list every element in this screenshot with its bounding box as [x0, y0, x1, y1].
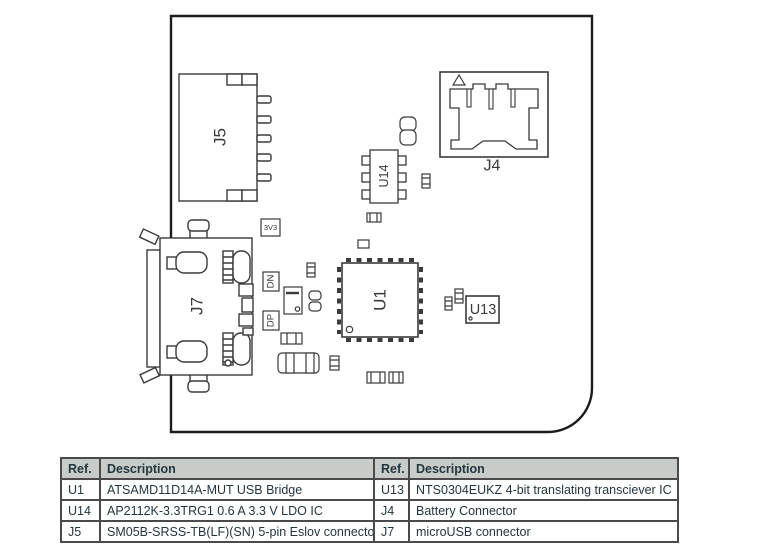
component-reference-table: Ref. Description Ref. Description U1 ATS…	[60, 457, 679, 543]
j5-pin	[257, 116, 271, 123]
ref-cell: U14	[61, 500, 100, 521]
desc-cell: NTS0304EUKZ 4-bit translating transcieve…	[409, 479, 678, 500]
ref-cell: J7	[374, 521, 409, 542]
board-diagram: J5	[0, 0, 764, 452]
desc-cell: ATSAMD11D14A-MUT USB Bridge	[100, 479, 374, 500]
label-j5: J5	[211, 128, 230, 146]
header-ref-left: Ref.	[61, 458, 100, 479]
desc-cell: SM05B-SRSS-TB(LF)(SN) 5-pin Eslov connec…	[100, 521, 374, 542]
header-desc-right: Description	[409, 458, 678, 479]
j5-pin	[257, 154, 271, 161]
header-desc-left: Description	[100, 458, 374, 479]
j5-pin	[257, 174, 271, 181]
label-u1: U1	[371, 289, 390, 311]
pcb-layout-page: J5	[0, 0, 764, 555]
label-3v3: 3V3	[264, 223, 277, 232]
component-j4	[440, 72, 548, 157]
ref-cell: J5	[61, 521, 100, 542]
j5-pin	[257, 135, 271, 142]
label-dp: DP	[266, 314, 277, 327]
table-row: J5 SM05B-SRSS-TB(LF)(SN) 5-pin Eslov con…	[61, 521, 678, 542]
ref-cell: U1	[61, 479, 100, 500]
silkscreen-dp: DP	[263, 311, 279, 330]
desc-cell: AP2112K-3.3TRG1 0.6 A 3.3 V LDO IC	[100, 500, 374, 521]
silkscreen-dn: DN	[263, 272, 279, 291]
table-header-row: Ref. Description Ref. Description	[61, 458, 678, 479]
table-row: U1 ATSAMD11D14A-MUT USB Bridge U13 NTS03…	[61, 479, 678, 500]
header-ref-right: Ref.	[374, 458, 409, 479]
label-u13: U13	[470, 302, 497, 318]
table-row: U14 AP2112K-3.3TRG1 0.6 A 3.3 V LDO IC J…	[61, 500, 678, 521]
ref-cell: J4	[374, 500, 409, 521]
label-u14: U14	[377, 164, 391, 187]
ref-cell: U13	[374, 479, 409, 500]
label-j7: J7	[188, 297, 207, 315]
silkscreen-3v3: 3V3	[261, 219, 280, 236]
j5-pin	[257, 96, 271, 103]
label-j4: J4	[484, 158, 501, 175]
desc-cell: Battery Connector	[409, 500, 678, 521]
label-dn: DN	[266, 275, 277, 289]
desc-cell: microUSB connector	[409, 521, 678, 542]
